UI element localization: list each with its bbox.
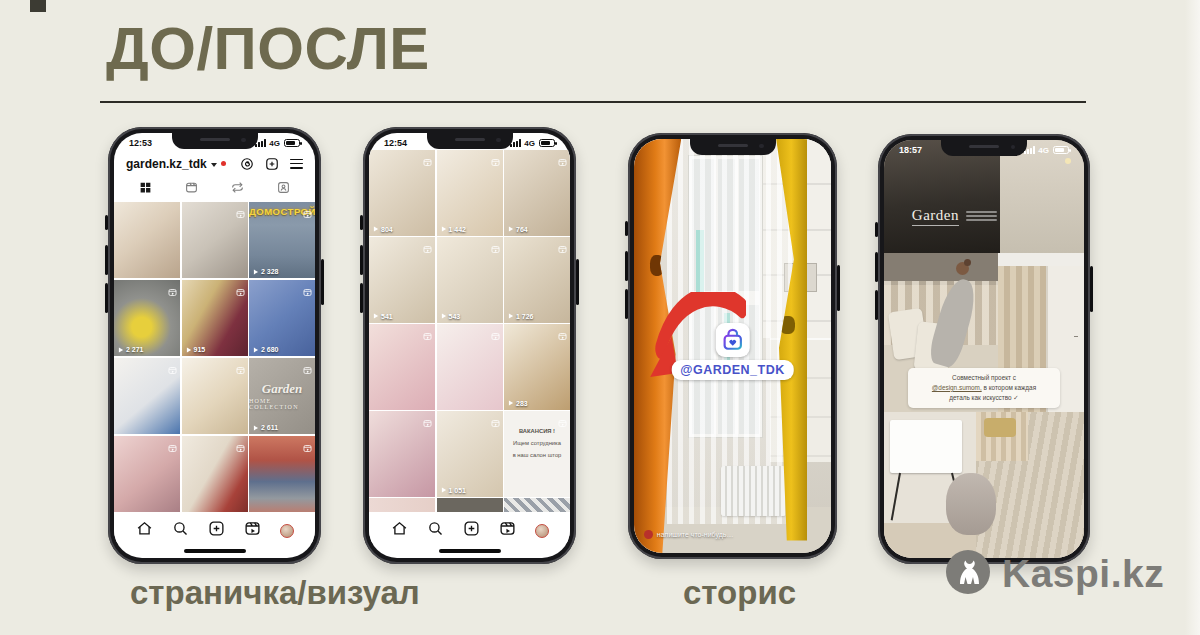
pouf <box>946 473 996 534</box>
profile-grid: ДОМОСТРОЙ2 3282 2719152 680GardenHOME CO… <box>114 202 315 512</box>
home-indicator[interactable] <box>184 549 246 553</box>
phone-mockup-grid: 12:54 4G 8041 4427645415431 7262831 051В… <box>363 127 576 564</box>
volume-up-button <box>625 251 628 281</box>
reels-icon <box>303 283 312 292</box>
reels-icon <box>423 414 432 423</box>
phone-mockup-story-2: Garden <box>878 134 1090 564</box>
status-bar: 18:57 4G <box>884 140 1084 157</box>
view-count: 2 271 <box>118 346 144 353</box>
reels-icon <box>423 153 432 162</box>
grid-tile[interactable]: 541 <box>369 237 435 323</box>
threads-icon[interactable] <box>240 157 254 171</box>
grid-tile[interactable] <box>369 411 435 497</box>
reels-icon <box>236 361 245 370</box>
network-label: 4G <box>269 139 280 148</box>
tab-reels[interactable] <box>185 180 198 198</box>
grid-tile[interactable] <box>249 436 315 512</box>
hamburger-menu-icon[interactable] <box>290 156 303 171</box>
create-icon[interactable] <box>208 520 225 541</box>
grid-tile[interactable]: 1 442 <box>437 150 503 236</box>
grid-tile[interactable]: 2 680 <box>249 280 315 356</box>
story-reply-field[interactable]: напишите что-нибудь… <box>644 530 734 539</box>
create-post-icon[interactable] <box>265 157 279 171</box>
caption-page-visual: страничка/визуал <box>130 574 420 612</box>
phone-mockup-story: @GARDEN_TDK напишите что-нибудь… <box>628 133 837 559</box>
network-label: 4G <box>1038 146 1049 155</box>
profile-avatar[interactable] <box>280 524 294 538</box>
reels-icon <box>236 205 245 214</box>
reply-avatar <box>644 530 653 539</box>
volume-down-button <box>360 283 363 313</box>
view-count: 2 680 <box>253 346 279 353</box>
mention-label[interactable]: @GARDEN_TDK <box>671 360 794 380</box>
volume-up-button <box>875 252 878 282</box>
reply-placeholder: напишите что-нибудь… <box>657 531 734 538</box>
battery-icon <box>539 139 555 148</box>
power-button <box>321 259 324 305</box>
title-underline <box>100 101 1086 103</box>
status-bar: 12:54 4G <box>369 133 570 150</box>
grid-tile[interactable]: 283 <box>504 324 570 410</box>
home-indicator[interactable] <box>439 549 501 553</box>
reels-nav-icon[interactable] <box>244 520 261 541</box>
brand-tagline-lines <box>966 209 996 224</box>
reels-icon <box>303 205 312 214</box>
battery-icon <box>284 139 300 148</box>
status-time: 18:57 <box>899 145 922 155</box>
grid-tile[interactable] <box>114 358 180 434</box>
status-bar: 12:53 4G <box>114 133 315 150</box>
reels-icon <box>558 240 567 249</box>
photo-grid: 8041 4427645415431 7262831 051ВАКАНСИЯ !… <box>369 150 570 512</box>
grid-tile[interactable]: 804 <box>369 150 435 236</box>
story-photo-bedroom: Garden <box>884 140 1084 558</box>
search-icon[interactable] <box>427 520 444 541</box>
view-count: 764 <box>508 226 528 233</box>
view-count: 543 <box>441 313 461 320</box>
chandelier <box>1065 158 1071 164</box>
reels-nav-icon[interactable] <box>499 520 516 541</box>
grid-tile[interactable] <box>114 202 180 278</box>
volume-up-button <box>105 245 108 275</box>
grid-tile[interactable] <box>182 358 248 434</box>
grid-tile[interactable]: 2 271 <box>114 280 180 356</box>
view-count: 283 <box>508 400 528 407</box>
mute-switch <box>875 222 878 237</box>
tab-grid[interactable] <box>139 180 152 198</box>
chevron-down-icon[interactable] <box>211 163 217 167</box>
view-count: 915 <box>186 346 206 353</box>
grid-tile[interactable]: 1 051 <box>437 411 503 497</box>
reels-icon <box>491 327 500 336</box>
mute-switch <box>105 215 108 230</box>
view-count: 2 611 <box>253 424 278 431</box>
home-icon[interactable] <box>136 520 153 541</box>
volume-up-button <box>360 245 363 275</box>
reels-icon <box>303 439 312 448</box>
vacancy-text: ВАКАНСИЯ !Ищем сотрудникав наш салон што… <box>507 425 566 462</box>
kaspi-watermark: Kaspi.kz <box>944 548 1164 600</box>
volume-down-button <box>625 289 628 319</box>
status-time: 12:54 <box>384 138 407 148</box>
reels-icon <box>168 283 177 292</box>
reels-icon <box>168 361 177 370</box>
power-button <box>576 259 579 305</box>
corner-mark <box>30 0 46 12</box>
search-icon[interactable] <box>172 520 189 541</box>
power-button <box>837 265 840 311</box>
grid-tile[interactable]: ВАКАНСИЯ !Ищем сотрудникав наш салон што… <box>504 411 570 497</box>
grid-tile[interactable]: ДОМОСТРОЙ2 328 <box>249 202 315 278</box>
power-button <box>1090 266 1093 312</box>
slide-title: ДО/ПОСЛЕ <box>106 14 430 83</box>
reels-icon <box>423 327 432 336</box>
mute-switch <box>625 221 628 236</box>
mention-link[interactable]: @design.sumom, <box>932 384 982 391</box>
view-count: 2 328 <box>253 268 279 275</box>
slide: ДО/ПОСЛЕ 12:53 4G garden.kz_tdk <box>0 0 1200 635</box>
reels-icon <box>303 361 312 370</box>
dressing-table <box>890 420 962 473</box>
grid-tile[interactable] <box>182 436 248 512</box>
notch <box>690 139 776 155</box>
reels-icon <box>491 414 500 423</box>
phone-mockup-profile: 12:53 4G garden.kz_tdk <box>108 127 321 564</box>
view-count: 804 <box>373 226 393 233</box>
radiator <box>721 466 786 516</box>
kaspi-logo-text: Kaspi.kz <box>1002 552 1164 596</box>
grid-tile[interactable]: 1 726 <box>504 237 570 323</box>
signal-icon <box>510 139 521 147</box>
reels-icon <box>491 153 500 162</box>
mute-switch <box>360 215 363 230</box>
grid-tile[interactable] <box>437 324 503 410</box>
grid-tile[interactable]: 543 <box>437 237 503 323</box>
volume-down-button <box>105 283 108 313</box>
mention-sticker[interactable]: @GARDEN_TDK <box>671 323 794 380</box>
tab-repost[interactable] <box>231 180 244 198</box>
grid-tile-partial[interactable] <box>369 498 435 512</box>
kaspi-logo-icon <box>944 548 992 600</box>
profile-avatar[interactable] <box>535 524 549 538</box>
view-count: 1 442 <box>441 226 467 233</box>
reels-icon <box>491 240 500 249</box>
battery-icon <box>1053 146 1069 155</box>
grid-tile[interactable] <box>182 202 248 278</box>
profile-tabs <box>114 175 315 202</box>
signal-icon <box>255 139 266 147</box>
brand-logo: Garden <box>912 207 959 226</box>
bottom-nav <box>369 512 570 543</box>
grid-tile-partial[interactable] <box>437 498 503 512</box>
volume-down-button <box>875 290 878 320</box>
reels-icon <box>423 240 432 249</box>
view-count: 1 726 <box>508 313 534 320</box>
home-icon[interactable] <box>391 520 408 541</box>
reels-icon <box>558 327 567 336</box>
reels-icon <box>558 153 567 162</box>
tab-tagged[interactable] <box>277 180 290 198</box>
window-glass <box>884 253 998 285</box>
reels-icon <box>168 439 177 448</box>
notification-dot <box>221 161 226 166</box>
grid-tile[interactable]: GardenHOME COLLECTION2 611 <box>249 358 315 434</box>
gold-pillow <box>984 418 1016 437</box>
caption-stories: сторис <box>683 574 796 612</box>
status-time: 12:53 <box>129 138 152 148</box>
username[interactable]: garden.kz_tdk <box>126 157 207 171</box>
grid-tile[interactable]: 915 <box>182 280 248 356</box>
grid-tile[interactable] <box>369 324 435 410</box>
signal-icon <box>1024 146 1035 154</box>
reels-icon <box>236 439 245 448</box>
story-caption[interactable]: Совместный проект с @design.sumom, в кот… <box>908 368 1060 408</box>
view-count: 1 051 <box>441 487 467 494</box>
shopping-bag-icon <box>716 323 750 357</box>
grid-tile[interactable] <box>114 436 180 512</box>
reels-icon <box>558 414 567 423</box>
person-hair-bun <box>964 259 971 266</box>
bottom-nav <box>114 512 315 543</box>
edge-strip <box>1185 0 1200 635</box>
reels-icon <box>236 283 245 292</box>
story-photo-kitchen: @GARDEN_TDK напишите что-нибудь… <box>634 139 831 553</box>
view-count: 541 <box>373 313 393 320</box>
grid-tile[interactable]: 764 <box>504 150 570 236</box>
grid-tile-partial[interactable] <box>504 498 570 512</box>
network-label: 4G <box>524 139 535 148</box>
create-icon[interactable] <box>463 520 480 541</box>
profile-header: garden.kz_tdk <box>114 150 315 175</box>
vanity-scene <box>884 412 1084 558</box>
